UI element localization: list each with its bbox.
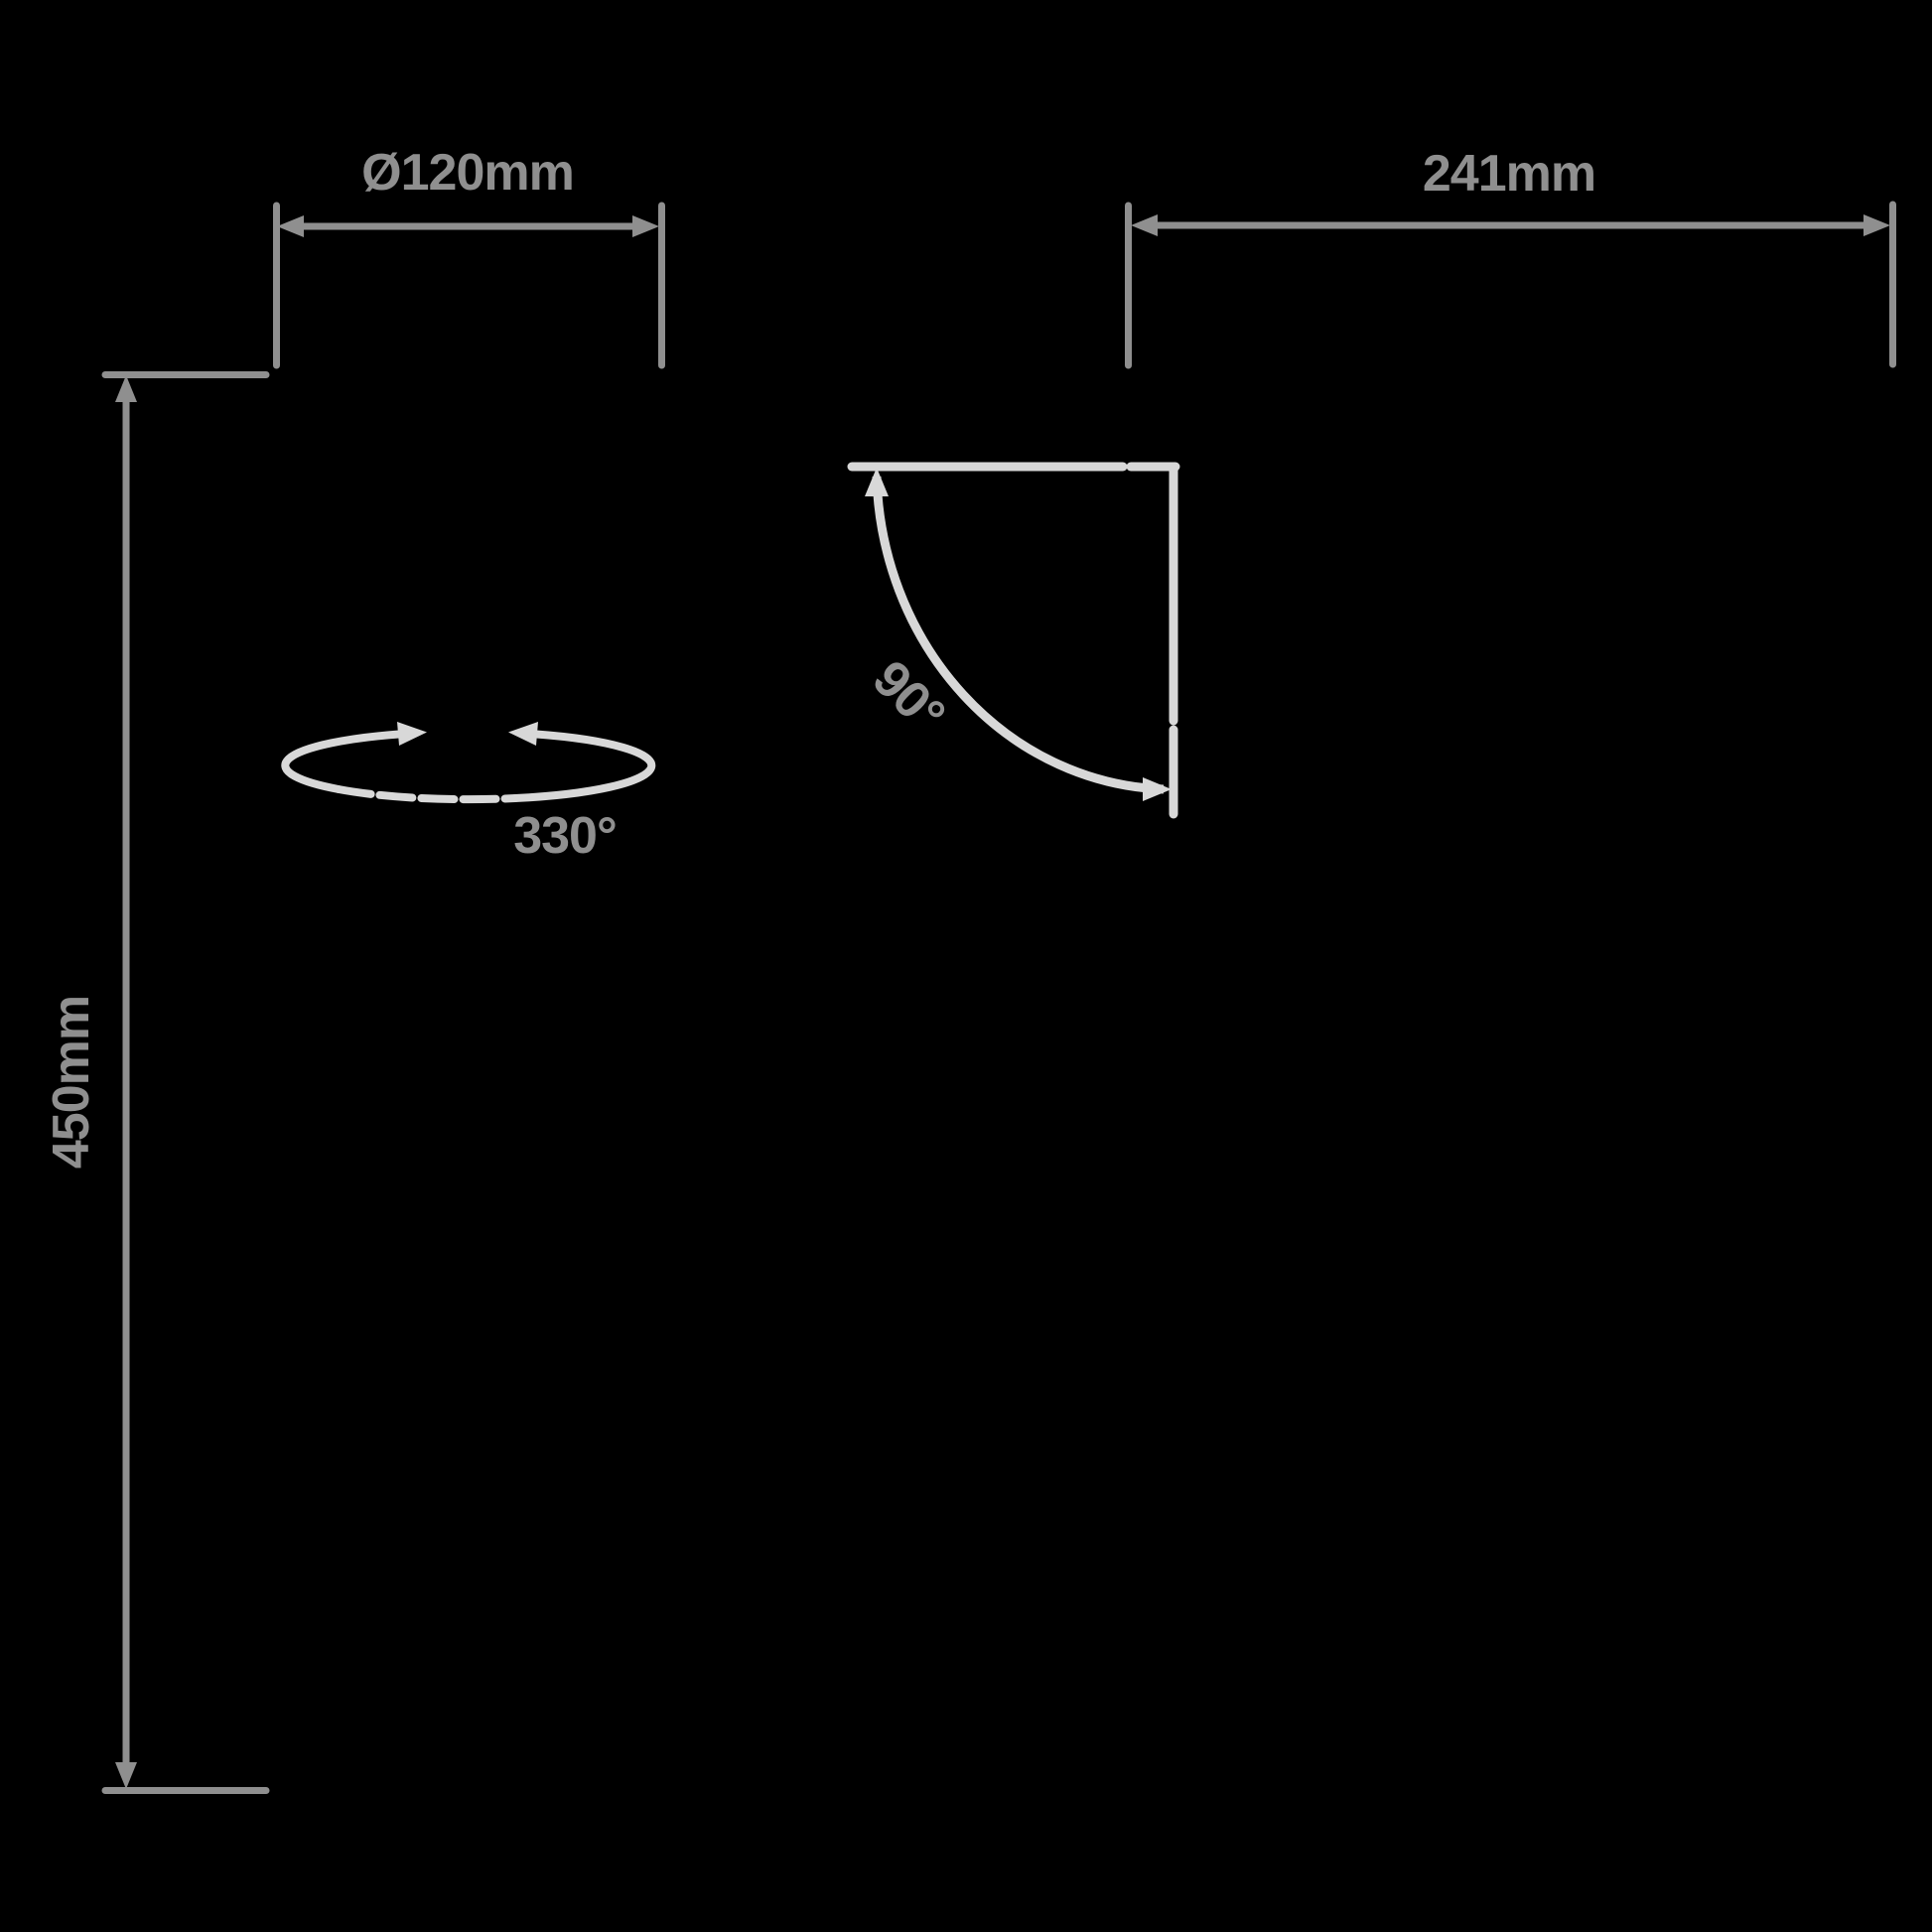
rotation-arrow-cw-icon bbox=[397, 722, 427, 746]
width-arrow-left-icon bbox=[1131, 214, 1158, 236]
tilt-arc bbox=[877, 477, 1164, 789]
height-label: 450mm bbox=[42, 996, 101, 1169]
width-label: 241mm bbox=[1423, 144, 1595, 204]
height-arrow-top-icon bbox=[115, 375, 137, 402]
width-arrow-right-icon bbox=[1863, 214, 1890, 236]
diameter-arrow-right-icon bbox=[632, 215, 659, 237]
diameter-label: Ø120mm bbox=[361, 143, 574, 203]
width-dimension bbox=[1129, 205, 1893, 365]
rotation-arc-dashed-front bbox=[339, 789, 515, 799]
diameter-dimension bbox=[277, 206, 662, 365]
tilt-symbol bbox=[852, 467, 1175, 814]
dimension-diagram: Ø120mm 241mm 450mm 330° 90° bbox=[0, 0, 1932, 1932]
diameter-arrow-left-icon bbox=[277, 215, 304, 237]
dimension-drawing-svg bbox=[0, 0, 1932, 1932]
rotation-symbol bbox=[285, 722, 651, 799]
height-arrow-bottom-icon bbox=[115, 1762, 137, 1789]
tilt-arrow-right-icon bbox=[1143, 777, 1172, 801]
height-dimension bbox=[105, 375, 266, 1791]
rotation-angle-label: 330° bbox=[513, 806, 617, 866]
rotation-arc-left bbox=[285, 735, 399, 790]
rotation-arrow-ccw-icon bbox=[508, 722, 538, 746]
tilt-arrow-up-icon bbox=[865, 468, 889, 496]
